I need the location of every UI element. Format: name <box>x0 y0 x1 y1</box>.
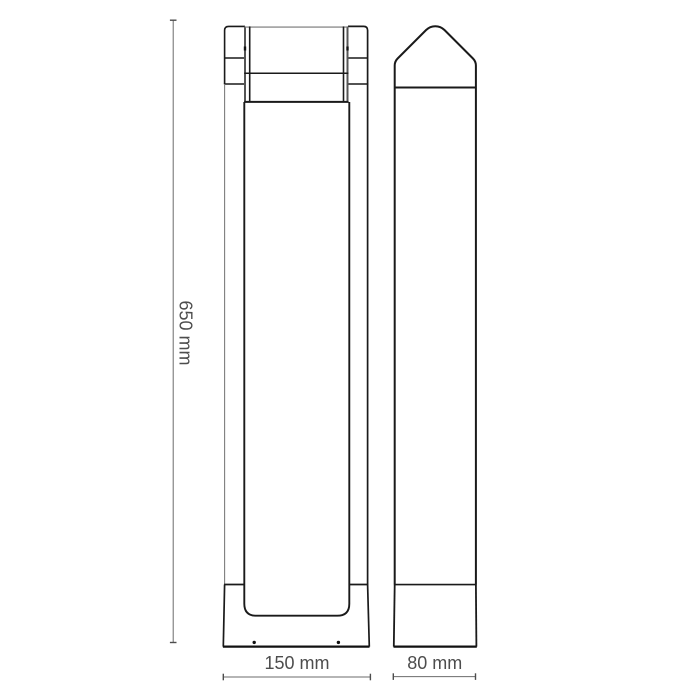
svg-text:650 mm: 650 mm <box>176 300 196 365</box>
svg-text:80 mm: 80 mm <box>407 653 462 673</box>
svg-text:150 mm: 150 mm <box>264 653 329 673</box>
